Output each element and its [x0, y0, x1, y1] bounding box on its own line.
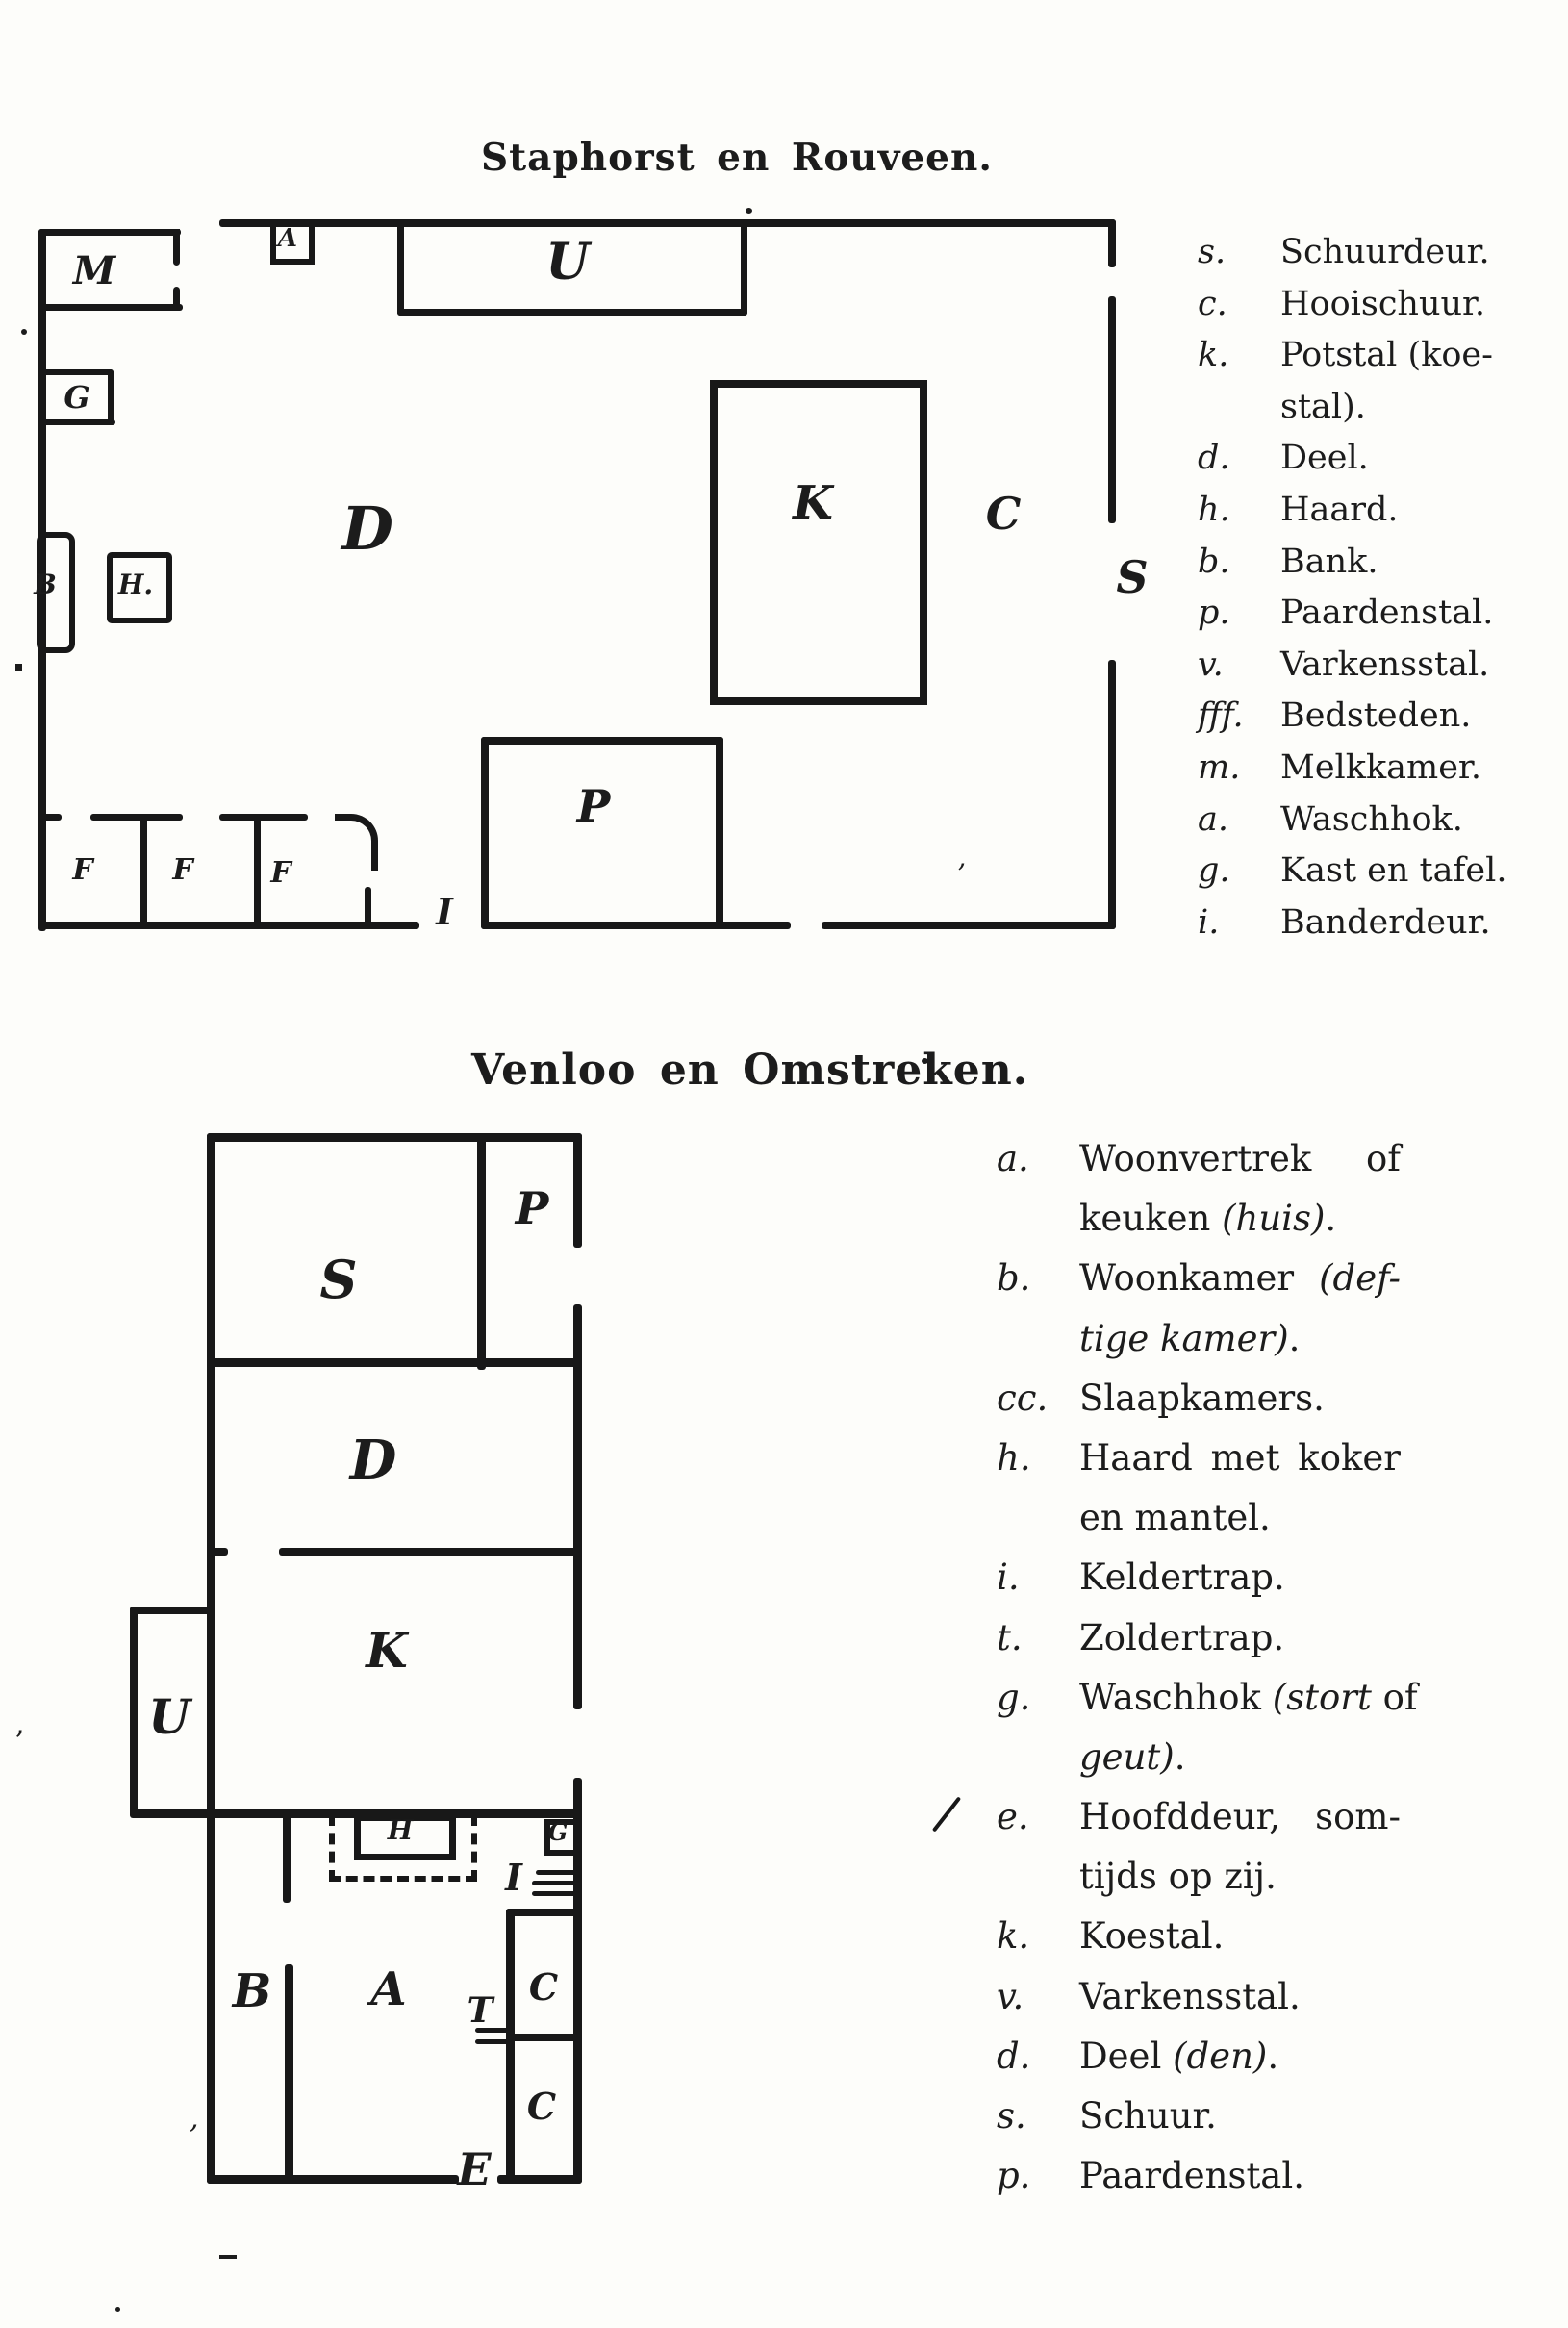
p1-ink-tick: ’ — [957, 861, 966, 888]
p1-melkkamer-right-wall-upper — [173, 229, 180, 266]
p1-paardenstal-right-wall — [716, 737, 723, 929]
legend-row: p.Paardenstal. — [1198, 588, 1568, 640]
p1-room-label-schuurdeur: S — [1116, 555, 1148, 599]
legend-row: v.Varkensstal. — [1198, 640, 1568, 692]
p2-room-label-varkensstal: U — [148, 1693, 190, 1741]
p2-partition-stub — [283, 1809, 291, 1903]
p2-room-label-koestal: K — [366, 1627, 407, 1675]
p1-right-wall-seg2 — [1108, 296, 1116, 523]
p1-room-label-melkkamer: M — [73, 252, 115, 291]
p1-room-label-deel: D — [341, 499, 393, 559]
p2-right-wall-seg1 — [573, 1133, 582, 1248]
p1-melkkamer-right-wall-lower — [173, 287, 180, 311]
legend-row: i.Banderdeur. — [1198, 898, 1568, 949]
legend-row: a.Woonvertrek of — [997, 1129, 1449, 1189]
legend-row: fff.Bedsteden. — [1198, 691, 1568, 743]
p2-room-label-slaapkamer1: C — [529, 1969, 558, 2006]
ink-speck — [115, 2307, 120, 2312]
p2-slaapkamers-left-wall — [506, 1909, 515, 2184]
p1-room-label-paardenstal: P — [577, 784, 611, 828]
p2-bottom-wall-seg1 — [207, 2175, 459, 2184]
legend-row: p.Paardenstal. — [997, 2146, 1449, 2206]
p2-room-label-slaapkamer2: C — [527, 2088, 556, 2125]
p2-zoldertrap-step2 — [475, 2039, 514, 2044]
legend-row: d.Deel (den). — [997, 2027, 1449, 2087]
legend-row: keuken (huis). — [997, 1189, 1449, 1249]
p2-keldertrap-step3 — [532, 1891, 578, 1896]
legend-row: a.Waschhok. — [1198, 795, 1568, 847]
p1-right-wall-seg3 — [1108, 660, 1116, 929]
p2-schuur-paardenstal-divider — [477, 1133, 486, 1370]
legend-row: k.Koestal. — [997, 1907, 1449, 1966]
p1-melkkamer-bottom-wall — [38, 304, 183, 311]
p2-deel-divider — [279, 1548, 582, 1556]
legend-row: s.Schuurdeur. — [1198, 227, 1568, 279]
p1-varkensstal-left-wall — [397, 219, 404, 316]
p1-room-label-haard: H. — [118, 571, 153, 598]
p2-room-label-zoldertrap: T — [468, 1993, 493, 2028]
legend-row: t.Zoldertrap. — [997, 1608, 1449, 1668]
legend-row: g.Kast en tafel. — [1198, 846, 1568, 898]
p2-varkensstal-left-wall — [130, 1607, 138, 1817]
p1-varkensstal-bottom-wall — [397, 309, 747, 316]
legend-row: b.Bank. — [1198, 537, 1568, 589]
legend-row: m.Melkkamer. — [1198, 743, 1568, 795]
legend-row: h.Haard met koker — [997, 1429, 1449, 1488]
p1-bedsteden-top-dash3 — [219, 814, 308, 821]
p1-bedsteden-top-dash1 — [38, 814, 62, 821]
p1-bedsteden-divider1 — [140, 814, 147, 927]
legend-row: s.Schuur. — [997, 2087, 1449, 2146]
p2-left-wall — [207, 1133, 215, 2184]
p1-room-label-hooischuur: C — [986, 492, 1022, 536]
p1-bedsteden-door-arc — [335, 814, 378, 871]
ink-speck — [21, 329, 27, 335]
plan2-legend: a.Woonvertrek of keuken (huis). b.Woonka… — [997, 1129, 1449, 2206]
p2-room-label-hoofddeur: E — [457, 2147, 491, 2191]
ink-speck — [922, 1058, 928, 1064]
p2-room-label-haard: H — [388, 1817, 413, 1844]
ink-speck — [15, 664, 22, 671]
p1-bedsteden-divider2 — [254, 814, 261, 927]
p2-room-label-paardenstal: P — [516, 1186, 549, 1230]
p1-bedsteden-door-dash — [365, 887, 371, 925]
p2-varkensstal-top-wall — [130, 1607, 215, 1614]
p1-melkkamer-top-wall — [38, 229, 181, 236]
p1-bottom-wall-seg1 — [38, 922, 419, 929]
p1-room-label-bedstede3: F — [270, 859, 291, 888]
p1-paardenstal-left-wall — [481, 737, 489, 929]
ink-speck — [746, 208, 752, 214]
p2-schuur-bottom-wall — [207, 1358, 582, 1367]
p1-varkensstal-right-wall — [741, 219, 747, 316]
p1-kast-top-wall — [38, 369, 114, 375]
ink-dash — [219, 2255, 237, 2259]
p2-woonkamer-divider — [285, 1964, 293, 2184]
p2-room-label-keldertrap: I — [505, 1860, 522, 1896]
p1-bottom-wall-seg2 — [481, 922, 791, 929]
p2-slaapkamers-divider — [506, 2034, 582, 2041]
p2-deel-divider-stub — [207, 1548, 228, 1556]
p1-room-label-kast: G — [63, 382, 89, 413]
p1-kast-bottom-wall — [38, 419, 115, 425]
scanned-page: Staphorst en Rouveen. Venloo en Omstreke… — [0, 0, 1568, 2328]
p2-slaapkamers-top-wall — [506, 1909, 582, 1916]
plan2-title: Venloo en Omstreken. — [471, 1046, 914, 1095]
legend-row: c.Hooischuur. — [1198, 279, 1568, 331]
p1-right-wall-seg1 — [1108, 219, 1116, 267]
p1-top-wall — [219, 219, 1116, 227]
hoofddeur-slash-mark — [932, 1796, 961, 1832]
p1-paardenstal-top-wall — [481, 737, 723, 745]
p2-top-wall — [207, 1133, 582, 1142]
legend-row: stal). — [1198, 382, 1568, 434]
legend-row: v.Varkensstal. — [997, 1967, 1449, 2027]
legend-row: h.Haard. — [1198, 485, 1568, 537]
legend-row: g.Waschhok (stort of — [997, 1668, 1449, 1728]
p1-bedsteden-top-dash2 — [90, 814, 183, 821]
p1-room-label-banderdeur: I — [436, 894, 453, 930]
legend-row: en mantel. — [997, 1488, 1449, 1548]
p2-keldertrap-step1 — [536, 1870, 578, 1875]
legend-row: b.Woonkamer (def- — [997, 1249, 1449, 1308]
p1-potstal-box — [710, 380, 927, 705]
legend-row: i.Keldertrap. — [997, 1548, 1449, 1607]
plan1-legend: s.Schuurdeur. c.Hooischuur. k.Potstal (k… — [1198, 227, 1568, 949]
p1-kast-right-wall — [108, 369, 114, 425]
legend-row: tige kamer). — [997, 1309, 1449, 1369]
legend-row: e.Hoofddeur, som- — [997, 1787, 1449, 1847]
p2-room-label-deel: D — [350, 1433, 397, 1487]
legend-row: k.Potstal (koe- — [1198, 330, 1568, 382]
plan1-title: Staphorst en Rouveen. — [481, 136, 885, 180]
p1-room-label-bank: B — [34, 571, 57, 598]
legend-row: d.Deel. — [1198, 433, 1568, 485]
p1-room-label-bedstede2: F — [172, 856, 192, 885]
p2-room-label-woonvertrek: A — [370, 1966, 406, 2012]
ink-tick: , — [15, 1710, 25, 1739]
p1-room-label-varkensstal: U — [545, 238, 589, 288]
legend-row: cc.Slaapkamers. — [997, 1369, 1449, 1429]
legend-row: geut). — [997, 1728, 1449, 1787]
p1-room-label-bedstede1: F — [72, 856, 92, 885]
p2-room-label-waschhok: G — [548, 1821, 569, 1844]
p2-room-label-schuur: S — [320, 1253, 358, 1305]
p2-keldertrap-step2 — [532, 1881, 578, 1885]
p1-room-label-waschhok: A — [278, 226, 297, 251]
ink-tick: , — [190, 2105, 199, 2134]
p2-room-label-woonkamer: B — [233, 1968, 272, 2014]
legend-row: tijds op zij. — [997, 1847, 1449, 1907]
p1-room-label-potstal: K — [793, 480, 833, 526]
p1-bottom-wall-seg3 — [822, 922, 1116, 929]
